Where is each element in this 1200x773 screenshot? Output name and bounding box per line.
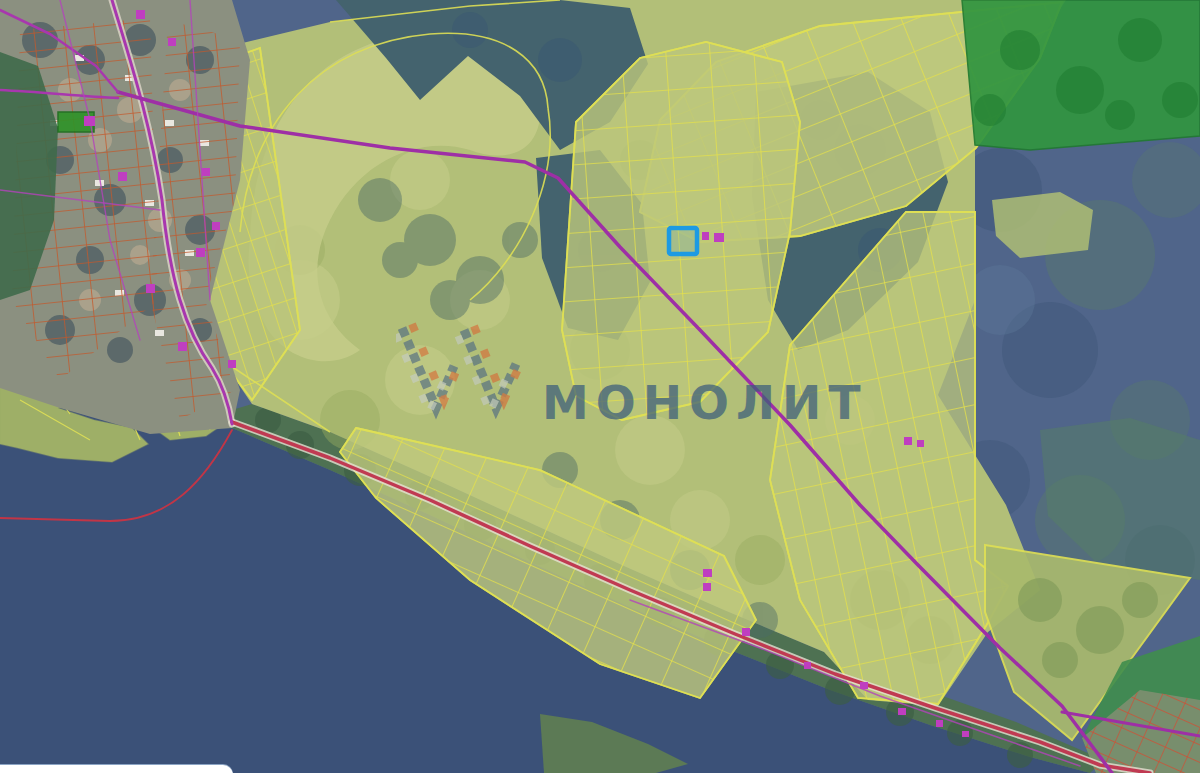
bottom-left-panel[interactable] bbox=[0, 765, 233, 773]
selected-parcel-highlight[interactable] bbox=[669, 228, 697, 254]
map-canvas[interactable] bbox=[0, 0, 1200, 773]
map-viewport[interactable]: МОНОЛИТ bbox=[0, 0, 1200, 773]
